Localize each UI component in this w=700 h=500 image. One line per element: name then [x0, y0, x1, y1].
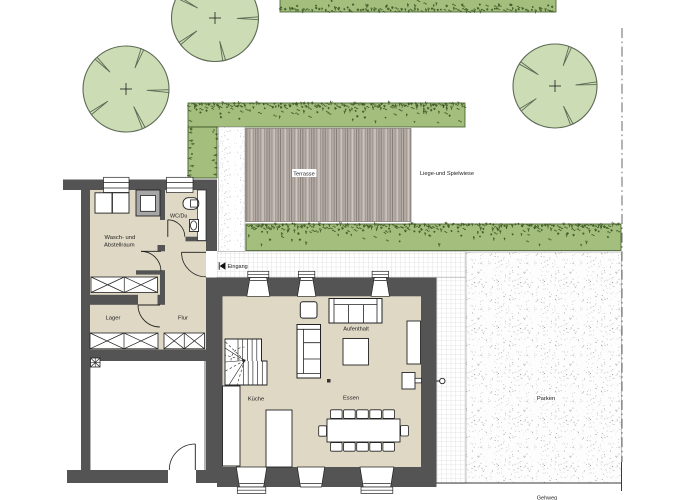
svg-text:Terrasse: Terrasse [293, 172, 314, 178]
svg-text:Eingang: Eingang [228, 264, 248, 270]
svg-text:Abstellraum: Abstellraum [104, 243, 135, 249]
svg-text:Flur: Flur [178, 315, 188, 321]
svg-text:Lager: Lager [106, 316, 121, 322]
svg-text:WC/Du: WC/Du [170, 214, 187, 220]
svg-text:Essen: Essen [343, 396, 359, 402]
svg-text:Küche: Küche [248, 396, 264, 402]
svg-text:Parken: Parken [537, 396, 555, 402]
svg-text:Gehweg: Gehweg [537, 495, 558, 500]
svg-text:Wasch- und: Wasch- und [105, 235, 136, 241]
svg-text:Aufenthalt: Aufenthalt [343, 327, 369, 333]
svg-text:Liege-und Spielwiese: Liege-und Spielwiese [420, 171, 474, 177]
